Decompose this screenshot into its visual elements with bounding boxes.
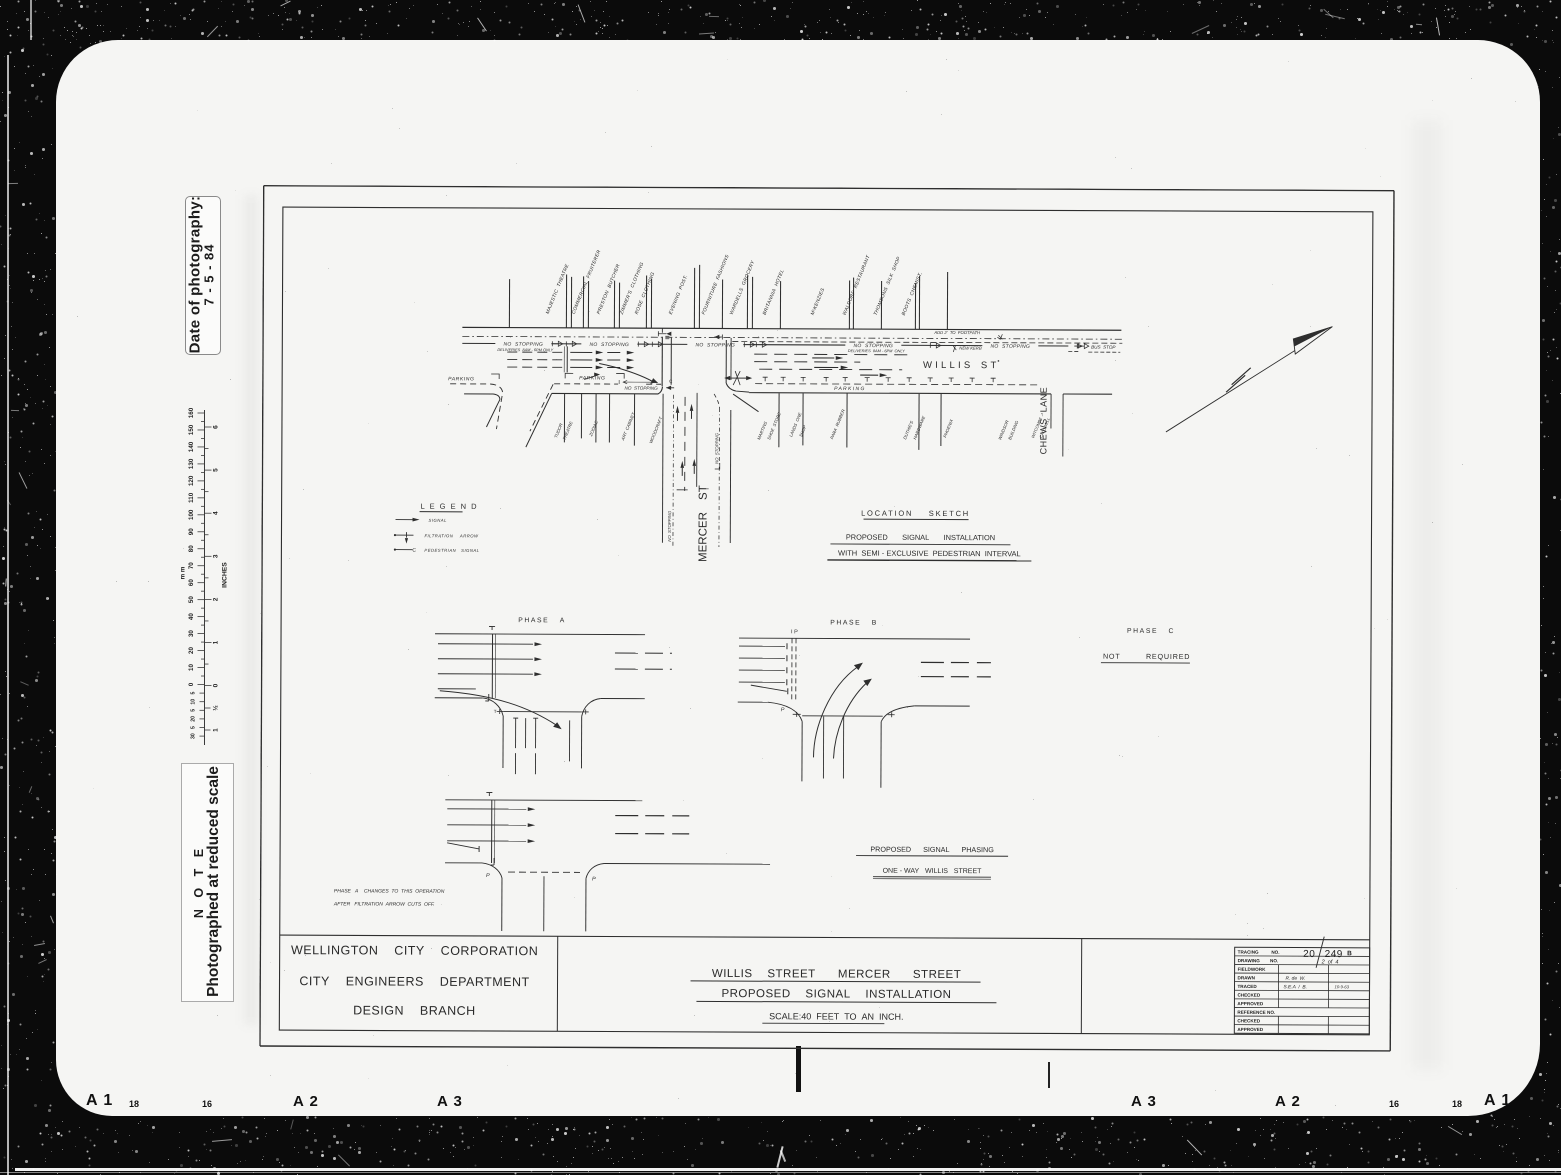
svg-text:FIELDWORK: FIELDWORK xyxy=(1238,967,1267,972)
svg-text:120: 120 xyxy=(188,475,195,486)
svg-text:5: 5 xyxy=(191,709,197,712)
svg-text:NO STOPPING: NO STOPPING xyxy=(695,342,735,348)
svg-text:B: B xyxy=(1347,950,1352,957)
svg-text:DELIVERIES 8AM - 6PM ONLY: DELIVERIES 8AM - 6PM ONLY xyxy=(848,348,905,353)
svg-text:PARKING: PARKING xyxy=(448,376,474,382)
svg-text:FOURNITURE FASHIONS: FOURNITURE FASHIONS xyxy=(701,253,731,315)
svg-text:PRESTON BUTCHER: PRESTON BUTCHER xyxy=(596,263,622,315)
svg-text:PHASE A CHANGES TO THIS: PHASE A CHANGES TO THIS OPERATION xyxy=(334,888,445,894)
svg-text:LOCATION SKETCH: LOCATION SKETCH xyxy=(861,509,970,518)
svg-text:NO STOPPING: NO STOPPING xyxy=(667,510,672,542)
svg-text:PHASE A: PHASE A xyxy=(518,617,566,624)
svg-text:REQUIRED: REQUIRED xyxy=(1146,652,1190,661)
svg-text:C: C xyxy=(669,379,673,384)
svg-text:½: ½ xyxy=(212,705,220,711)
svg-text:ADD 2' TO FOOTPATH: ADD 2' TO FOOTPATH xyxy=(933,330,981,335)
svg-text:SHOP: SHOP xyxy=(798,424,807,437)
svg-text:WOODCRAFT: WOODCRAFT xyxy=(648,416,663,444)
svg-text:WITH SEMI - EXCLUSIVE PEDEST: WITH SEMI - EXCLUSIVE PEDESTRIAN INTERVA… xyxy=(838,549,1021,559)
svg-text:WELLINGTON CITY CORPORAT: WELLINGTON CITY CORPORATION xyxy=(291,943,538,958)
svg-text:PROPOSED SIGNAL PHAS: PROPOSED SIGNAL PHASING xyxy=(870,845,994,855)
svg-text:110: 110 xyxy=(188,492,195,503)
svg-text:80: 80 xyxy=(188,545,195,552)
svg-text:MᶜKENZIES: MᶜKENZIES xyxy=(810,287,827,317)
svg-text:PARKING: PARKING xyxy=(579,375,605,381)
svg-text:SIGNAL: SIGNAL xyxy=(429,518,448,523)
svg-text:6: 6 xyxy=(213,425,220,429)
svg-text:P: P xyxy=(781,707,785,713)
svg-text:70: 70 xyxy=(188,562,195,569)
svg-text:NO STOPPING: NO STOPPING xyxy=(714,432,719,464)
svg-text:FILTRATION ARROW: FILTRATION ARROW xyxy=(424,533,479,538)
svg-text:SHOE STORE: SHOE STORE xyxy=(766,411,782,440)
svg-text:NO STOPPING: NO STOPPING xyxy=(589,342,629,348)
svg-text:SCALE:40 FEET TO AN INCH.: SCALE:40 FEET TO AN INCH. xyxy=(769,1011,903,1022)
svg-text:BUS STOP: BUS STOP xyxy=(1091,345,1116,350)
svg-text:CHECKED: CHECKED xyxy=(1237,993,1260,998)
svg-text:NEW KERB: NEW KERB xyxy=(959,346,982,351)
svg-text:140: 140 xyxy=(188,441,195,452)
svg-text:S.E.A / B.: S.E.A / B. xyxy=(1283,984,1306,990)
svg-text:BRITANNIA HOTEL: BRITANNIA HOTEL xyxy=(762,269,786,316)
svg-text:INCHES: INCHES xyxy=(222,562,229,588)
svg-text:NO STOPPING: NO STOPPING xyxy=(625,386,659,391)
svg-text:2 of 4: 2 of 4 xyxy=(1321,959,1339,965)
svg-text:R. de W.: R. de W. xyxy=(1286,976,1306,982)
svg-text:5: 5 xyxy=(191,726,197,729)
svg-text:30: 30 xyxy=(191,733,197,739)
svg-text:MERCER: MERCER xyxy=(697,512,709,562)
svg-text:30: 30 xyxy=(188,630,195,637)
svg-text:CHECKED: CHECKED xyxy=(1237,1018,1260,1023)
svg-text:DELIVERIES 8AM - 6PM ONLY: DELIVERIES 8AM - 6PM ONLY xyxy=(497,347,553,352)
svg-text:TRACING NO.: TRACING NO. xyxy=(1238,950,1280,955)
svg-text:130: 130 xyxy=(188,458,195,469)
svg-text:P: P xyxy=(486,873,490,879)
svg-text:PROPOSED SIGNAL INSTALLA: PROPOSED SIGNAL INSTALLATION xyxy=(721,988,951,1001)
svg-text:20: 20 xyxy=(188,647,195,654)
svg-text:SṬ: SṬ xyxy=(698,485,710,500)
svg-text:NOT: NOT xyxy=(1103,652,1121,661)
svg-text:REFERENCE NO.: REFERENCE NO. xyxy=(1237,1010,1275,1015)
svg-text:40: 40 xyxy=(188,613,195,620)
svg-text:TRACED: TRACED xyxy=(1238,984,1258,989)
svg-text:I P: I P xyxy=(791,629,798,635)
svg-text:NO STOPPING: NO STOPPING xyxy=(990,344,1030,350)
svg-text:PARA RUBBER: PARA RUBBER xyxy=(829,409,846,440)
svg-text:50: 50 xyxy=(188,596,195,603)
svg-text:APPROVED: APPROVED xyxy=(1237,1001,1263,1006)
svg-text:20: 20 xyxy=(1303,949,1315,960)
svg-text:AFTER FILTRATION ARROW CUT: AFTER FILTRATION ARROW CUTS OFF. xyxy=(333,901,435,907)
svg-text:PEDESTRIAN SIGNAL: PEDESTRIAN SIGNAL xyxy=(424,548,479,553)
svg-text:150: 150 xyxy=(188,424,195,435)
svg-text:APPROVED: APPROVED xyxy=(1237,1027,1263,1032)
svg-text:4: 4 xyxy=(213,511,220,515)
svg-text:5: 5 xyxy=(191,692,197,695)
svg-text:ONE - WAY WILLIS STREET: ONE - WAY WILLIS STREET xyxy=(883,868,983,875)
svg-text:20: 20 xyxy=(191,716,197,722)
svg-text:PHOENIX: PHOENIX xyxy=(942,418,954,438)
svg-text:BOOTS CHEMIST,: BOOTS CHEMIST, xyxy=(901,271,924,316)
svg-text:PROPOSED SIGNAL IN: PROPOSED SIGNAL INSTALLATION xyxy=(846,533,995,543)
svg-text:ST: ST xyxy=(981,360,1000,371)
svg-text:60: 60 xyxy=(188,579,195,586)
svg-text:0: 0 xyxy=(213,683,220,687)
svg-text:CITY ENGINEERS DEPARTMEN: CITY ENGINEERS DEPARTMENT xyxy=(299,974,529,989)
svg-text:WALDORF RESTAURANT: WALDORF RESTAURANT xyxy=(842,254,872,317)
svg-text:DRAWN: DRAWN xyxy=(1238,975,1256,980)
svg-text:10: 10 xyxy=(191,699,197,705)
svg-text:ZODIAC: ZODIAC xyxy=(588,419,599,438)
svg-text:1: 1 xyxy=(213,728,220,732)
svg-text:COMMERCIAL FRUITERER: COMMERCIAL FRUITERER xyxy=(571,249,603,315)
svg-text:10·9·63: 10·9·63 xyxy=(1335,984,1350,989)
svg-text:P A R K I N G: P A R K I N G xyxy=(834,386,864,392)
svg-text:ART CABINET: ART CABINET xyxy=(620,411,636,441)
svg-text:2: 2 xyxy=(213,597,220,601)
svg-text:0: 0 xyxy=(188,682,195,686)
svg-text:100: 100 xyxy=(188,509,195,520)
svg-text:m m: m m xyxy=(180,566,187,579)
svg-text:90: 90 xyxy=(188,528,195,535)
svg-text:10: 10 xyxy=(188,664,195,671)
svg-text:5: 5 xyxy=(213,468,220,472)
svg-text:1: 1 xyxy=(213,640,220,644)
svg-text:THOMSONS SILK SHOP: THOMSONS SILK SHOP xyxy=(873,255,903,316)
svg-text:PHASE B: PHASE B xyxy=(830,619,878,626)
svg-text:THEATRE: THEATRE xyxy=(562,420,574,440)
svg-text:WILLIS STREET MERCER: WILLIS STREET MERCER STREET xyxy=(712,968,961,981)
svg-text:T: T xyxy=(494,709,497,714)
svg-text:3: 3 xyxy=(213,554,220,558)
svg-text:EVENING POST.: EVENING POST. xyxy=(668,274,690,316)
svg-text:DRAWING NO.: DRAWING NO. xyxy=(1238,958,1279,963)
svg-text:DESIGN BRANCH: DESIGN BRANCH xyxy=(353,1003,476,1018)
svg-text:P: P xyxy=(592,876,596,882)
svg-text:C: C xyxy=(412,548,416,554)
svg-text:160: 160 xyxy=(188,407,195,418)
svg-text:WILLIS: WILLIS xyxy=(923,360,973,371)
svg-text:L E G E N D: L E G E N D xyxy=(421,502,479,511)
svg-text:PHASE C: PHASE C xyxy=(1127,628,1175,635)
